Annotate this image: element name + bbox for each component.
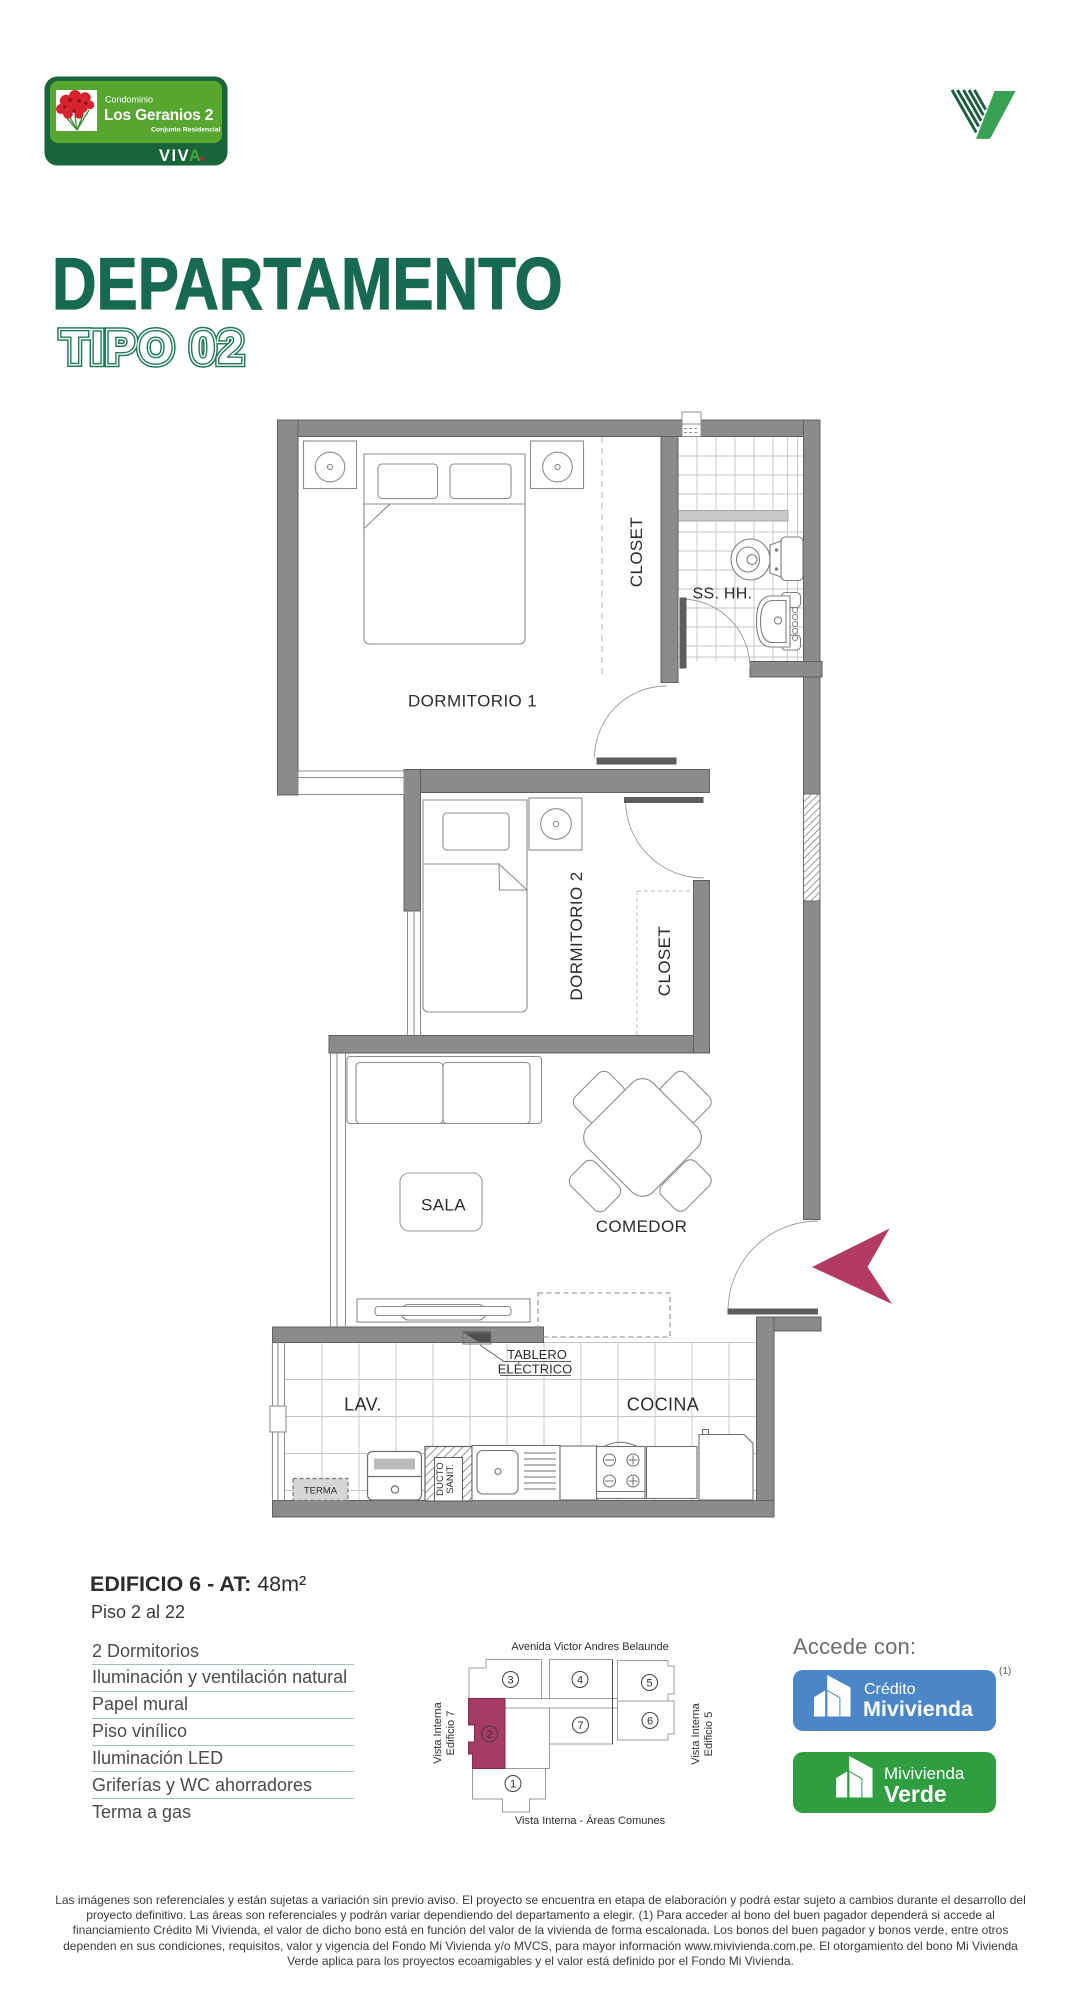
svg-text:7: 7: [577, 1720, 583, 1732]
svg-text:2: 2: [486, 1729, 492, 1741]
svg-text:4: 4: [577, 1675, 583, 1687]
svg-text:CLOSET: CLOSET: [627, 517, 646, 587]
svg-text:SANIT.: SANIT.: [445, 1464, 456, 1494]
svg-text:Avenida Victor Andres Belaunde: Avenida Victor Andres Belaunde: [511, 1641, 668, 1653]
svg-text:CLOSET: CLOSET: [655, 926, 674, 996]
svg-text:6: 6: [647, 1716, 653, 1728]
svg-text:TERMA: TERMA: [304, 1486, 338, 1497]
svg-text:TABLERO: TABLERO: [507, 1347, 567, 1362]
svg-text:3: 3: [507, 1675, 513, 1687]
svg-text:5: 5: [646, 1678, 652, 1690]
svg-text:SS. HH.: SS. HH.: [693, 586, 753, 603]
svg-text:DORMITORIO 2: DORMITORIO 2: [567, 871, 586, 1000]
svg-text:COCINA: COCINA: [627, 1395, 699, 1415]
svg-text:Vista Interna - Áreas Comunes: Vista Interna - Áreas Comunes: [515, 1814, 666, 1827]
svg-text:LAV.: LAV.: [344, 1395, 382, 1415]
svg-text:Edificio 7: Edificio 7: [445, 1711, 457, 1756]
svg-text:SALA: SALA: [421, 1196, 466, 1215]
svg-text:Vista Interna: Vista Interna: [690, 1702, 702, 1764]
svg-text:COMEDOR: COMEDOR: [596, 1217, 688, 1236]
svg-text:DORMITORIO 1: DORMITORIO 1: [408, 692, 537, 711]
svg-text:Vista Interna: Vista Interna: [432, 1701, 444, 1763]
svg-text:ELÉCTRICO: ELÉCTRICO: [498, 1362, 572, 1377]
svg-text:Edificio 5: Edificio 5: [703, 1712, 715, 1757]
svg-text:1: 1: [510, 1779, 516, 1791]
